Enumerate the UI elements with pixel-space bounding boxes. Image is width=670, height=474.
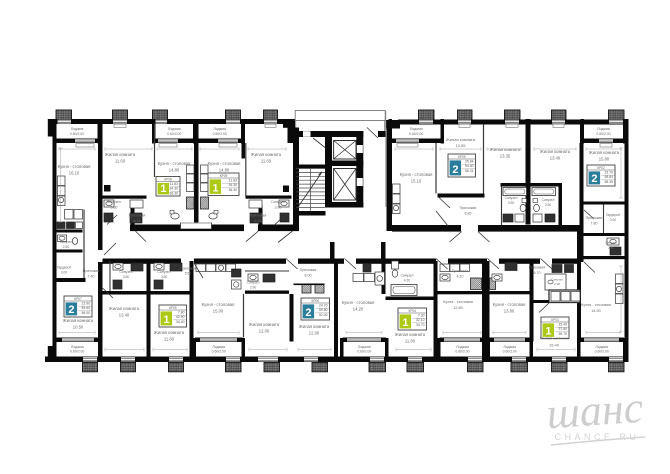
svg-text:Кухня - столовая: Кухня - столовая xyxy=(443,300,473,304)
svg-text:13.80: 13.80 xyxy=(504,309,515,314)
svg-text:2: 2 xyxy=(591,173,597,185)
svg-text:24.70: 24.70 xyxy=(319,304,328,308)
svg-text:12.00: 12.00 xyxy=(309,331,320,336)
svg-text:Санузел: Санузел xyxy=(505,196,518,200)
svg-text:Прихожая: Прихожая xyxy=(529,266,545,270)
svg-text:15.40: 15.40 xyxy=(549,343,560,348)
svg-text:25.84: 25.84 xyxy=(465,160,474,164)
svg-text:0.60/2.00: 0.60/2.00 xyxy=(595,350,609,354)
svg-text:36.30: 36.30 xyxy=(229,188,238,192)
svg-text:0.60/2.00: 0.60/2.00 xyxy=(212,350,226,354)
svg-text:0.60/2.00: 0.60/2.00 xyxy=(213,132,227,136)
svg-text:Кухня - столовая: Кухня - столовая xyxy=(208,161,241,166)
svg-text:Прихожая: Прихожая xyxy=(180,267,196,271)
svg-text:10.50: 10.50 xyxy=(73,325,84,330)
svg-text:53.60: 53.60 xyxy=(82,306,91,310)
svg-text:КР03: КР03 xyxy=(551,318,559,322)
svg-text:3.00: 3.00 xyxy=(61,271,68,275)
svg-text:3.80: 3.80 xyxy=(161,275,168,279)
svg-text:Жилая комната: Жилая комната xyxy=(105,152,136,157)
svg-text:Санузел: Санузел xyxy=(157,270,170,274)
svg-text:Лоджия: Лоджия xyxy=(168,127,181,131)
svg-text:3.80: 3.80 xyxy=(111,205,118,209)
svg-text:КР09: КР09 xyxy=(220,174,228,178)
svg-text:Санузел: Санузел xyxy=(605,241,617,245)
svg-text:КР05: КР05 xyxy=(169,306,177,310)
svg-text:Жилая комната: Жилая комната xyxy=(490,147,521,152)
svg-text:12.80: 12.80 xyxy=(453,306,463,310)
svg-text:2.90: 2.90 xyxy=(250,286,257,290)
svg-text:Жилая комната: Жилая комната xyxy=(251,152,282,157)
svg-text:56.00: 56.00 xyxy=(82,311,91,315)
svg-text:15.40: 15.40 xyxy=(559,323,568,327)
svg-text:Жилая комната: Жилая комната xyxy=(446,137,476,142)
svg-text:1: 1 xyxy=(212,182,218,194)
svg-text:Жилая комната: Жилая комната xyxy=(540,336,570,341)
svg-text:11.80: 11.80 xyxy=(164,337,175,342)
svg-text:Кухня - столовая: Кухня - столовая xyxy=(581,303,611,307)
svg-text:Санузел: Санузел xyxy=(542,198,555,202)
svg-text:Лоджия: Лоджия xyxy=(71,127,84,131)
svg-text:2.60: 2.60 xyxy=(63,245,70,249)
svg-text:58.35: 58.35 xyxy=(605,180,614,184)
svg-text:13.40: 13.40 xyxy=(119,313,130,318)
svg-text:16.10: 16.10 xyxy=(69,171,80,176)
svg-text:14.90: 14.90 xyxy=(591,309,601,313)
svg-text:Санузел: Санузел xyxy=(551,278,563,282)
svg-text:2: 2 xyxy=(68,304,74,316)
svg-text:13.40: 13.40 xyxy=(550,156,561,161)
svg-text:Жилая комната: Жилая комната xyxy=(154,330,185,335)
svg-text:2.80: 2.80 xyxy=(608,245,614,249)
svg-text:1: 1 xyxy=(160,183,166,195)
svg-text:Прихожая: Прихожая xyxy=(586,216,603,220)
svg-text:15.00: 15.00 xyxy=(213,309,224,314)
svg-text:0.60/2.00: 0.60/2.00 xyxy=(503,350,517,354)
svg-text:Лоджия: Лоджия xyxy=(358,345,371,349)
svg-text:Санузел: Санузел xyxy=(247,281,260,285)
svg-text:Гардероб: Гардероб xyxy=(57,266,72,270)
svg-text:Кухня - столовая: Кухня - столовая xyxy=(202,302,235,307)
svg-text:КР07: КР07 xyxy=(74,297,82,301)
svg-text:КР06: КР06 xyxy=(311,299,319,303)
svg-text:Жилая комната: Жилая комната xyxy=(63,318,94,323)
svg-text:50.80: 50.80 xyxy=(319,308,328,312)
svg-text:6.70: 6.70 xyxy=(534,271,541,275)
svg-text:Кухня - столовая: Кухня - столовая xyxy=(493,302,526,307)
svg-text:34.30: 34.30 xyxy=(170,187,179,191)
svg-text:Жилая комната: Жилая комната xyxy=(249,322,280,327)
svg-text:56.31: 56.31 xyxy=(465,169,474,173)
svg-text:52.00: 52.00 xyxy=(319,313,328,317)
svg-text:34.40: 34.40 xyxy=(176,320,185,324)
svg-text:КР02: КР02 xyxy=(597,166,605,170)
svg-text:11.60: 11.60 xyxy=(261,159,272,164)
svg-text:3.90: 3.90 xyxy=(545,203,552,207)
svg-text:7.80: 7.80 xyxy=(178,311,185,315)
svg-text:4.20: 4.20 xyxy=(457,274,464,278)
svg-text:54.40: 54.40 xyxy=(465,164,474,168)
svg-text:Прихожая: Прихожая xyxy=(250,214,267,218)
svg-text:2: 2 xyxy=(452,164,458,176)
svg-text:8.00: 8.00 xyxy=(305,273,312,277)
svg-text:0.60/2.00: 0.60/2.00 xyxy=(455,350,469,354)
svg-text:Лоджия: Лоджия xyxy=(213,127,226,131)
svg-text:КР04: КР04 xyxy=(408,309,416,313)
svg-text:11.60: 11.60 xyxy=(115,159,126,164)
svg-text:36.30: 36.30 xyxy=(170,191,179,195)
svg-text:3.80: 3.80 xyxy=(275,205,282,209)
svg-text:2.90: 2.90 xyxy=(554,282,560,286)
svg-text:Лоджия: Лоджия xyxy=(410,127,423,131)
svg-text:Жилая комната: Жилая комната xyxy=(589,150,620,155)
svg-text:7.40: 7.40 xyxy=(88,274,95,278)
svg-text:Прихожая: Прихожая xyxy=(83,269,100,273)
svg-text:Прихожая: Прихожая xyxy=(460,206,477,210)
svg-text:13.55: 13.55 xyxy=(455,143,466,148)
svg-text:1: 1 xyxy=(402,317,408,329)
svg-text:0.60/2.00: 0.60/2.00 xyxy=(596,132,610,136)
svg-text:Кухня - столовая: Кухня - столовая xyxy=(342,300,375,305)
svg-text:шанс: шанс xyxy=(545,383,645,439)
svg-text:37.80: 37.80 xyxy=(559,327,568,331)
svg-text:Жилая комната: Жилая комната xyxy=(109,306,140,311)
svg-text:14.80: 14.80 xyxy=(169,168,180,173)
svg-text:34.30: 34.30 xyxy=(229,183,238,187)
svg-text:Прихожая: Прихожая xyxy=(300,268,317,272)
svg-text:Санузел: Санузел xyxy=(107,200,121,204)
svg-text:1: 1 xyxy=(163,314,169,326)
svg-text:6.15: 6.15 xyxy=(134,219,141,223)
svg-text:15.10: 15.10 xyxy=(411,179,422,184)
svg-text:Прихожая: Прихожая xyxy=(452,269,468,273)
svg-text:КР08: КР08 xyxy=(164,177,172,181)
svg-text:Санузел: Санузел xyxy=(401,274,414,278)
svg-text:0.60/2.00: 0.60/2.00 xyxy=(70,132,84,136)
svg-text:Лоджия: Лоджия xyxy=(595,345,608,349)
svg-text:7.30: 7.30 xyxy=(418,314,425,318)
svg-text:34.70: 34.70 xyxy=(416,323,425,327)
svg-text:0.60/2.00: 0.60/2.00 xyxy=(70,350,84,354)
svg-text:7.80: 7.80 xyxy=(591,221,598,225)
svg-text:32.10: 32.10 xyxy=(416,318,425,322)
svg-text:Жилая комната: Жилая комната xyxy=(299,324,330,329)
svg-text:3.00: 3.00 xyxy=(610,218,617,222)
svg-text:Лоджия: Лоджия xyxy=(456,345,469,349)
svg-text:5.50: 5.50 xyxy=(185,272,192,276)
svg-text:4.20: 4.20 xyxy=(404,279,411,283)
svg-text:Лоджия: Лоджия xyxy=(503,345,516,349)
svg-text:Кухня - столовая: Кухня - столовая xyxy=(158,161,191,166)
svg-text:Прихожая: Прихожая xyxy=(129,214,146,218)
svg-text:3.90: 3.90 xyxy=(508,201,515,205)
svg-text:Кухня - столовая: Кухня - столовая xyxy=(58,164,91,169)
svg-text:0.60/2.00: 0.60/2.00 xyxy=(357,350,371,354)
svg-text:11.80: 11.80 xyxy=(405,339,416,344)
svg-text:3.80: 3.80 xyxy=(123,275,130,279)
svg-text:Лоджия: Лоджия xyxy=(212,345,225,349)
svg-text:0.60/2.00: 0.60/2.00 xyxy=(409,132,423,136)
svg-text:12.00: 12.00 xyxy=(259,329,270,334)
svg-text:Санузел: Санузел xyxy=(271,200,285,204)
svg-text:Гардероб: Гардероб xyxy=(606,213,621,217)
svg-text:КР09: КР09 xyxy=(458,155,466,159)
svg-text:Лоджия: Лоджия xyxy=(597,127,610,131)
svg-text:Жилая комната: Жилая комната xyxy=(395,332,426,337)
svg-text:Жилая комната: Жилая комната xyxy=(540,149,571,154)
svg-text:Кухня - столовая: Кухня - столовая xyxy=(400,172,433,177)
svg-text:Санузел: Санузел xyxy=(60,240,73,244)
svg-text:6.15: 6.15 xyxy=(255,219,262,223)
svg-text:Лоджия: Лоджия xyxy=(71,345,84,349)
svg-text:11.83: 11.83 xyxy=(229,179,237,183)
svg-text:13.35: 13.35 xyxy=(500,154,511,159)
svg-text:22.90: 22.90 xyxy=(82,302,91,306)
svg-text:42.90: 42.90 xyxy=(176,315,185,319)
svg-text:Санузел: Санузел xyxy=(119,270,132,274)
svg-text:0.60/2.00: 0.60/2.00 xyxy=(167,132,181,136)
svg-text:23.70: 23.70 xyxy=(605,171,614,175)
svg-text:11.83: 11.83 xyxy=(170,182,178,186)
svg-text:8.85: 8.85 xyxy=(465,211,472,215)
svg-text:14.80: 14.80 xyxy=(219,168,230,173)
svg-text:2: 2 xyxy=(305,307,311,319)
svg-text:14.20: 14.20 xyxy=(353,307,364,312)
svg-text:15.80: 15.80 xyxy=(599,157,610,162)
svg-text:55.84: 55.84 xyxy=(605,175,614,179)
